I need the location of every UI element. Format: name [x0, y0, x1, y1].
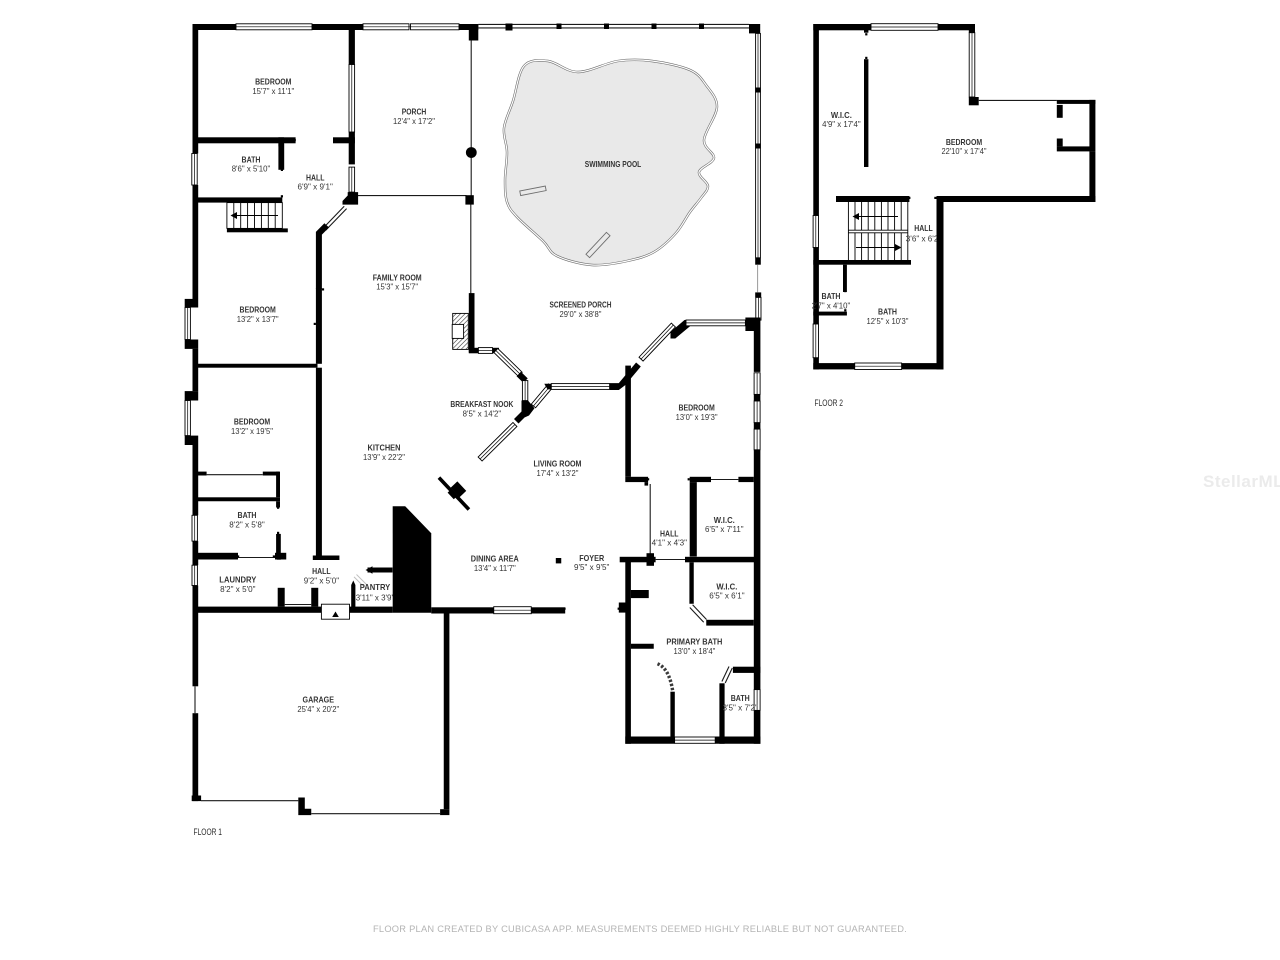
svg-text:3'5" x 7'2": 3'5" x 7'2" [723, 702, 758, 712]
svg-text:8'6" x 5'10": 8'6" x 5'10" [232, 163, 271, 173]
svg-text:13'9" x 22'2": 13'9" x 22'2" [363, 452, 405, 462]
svg-text:6'5" x 7'11": 6'5" x 7'11" [705, 524, 744, 534]
svg-text:15'3" x 15'7": 15'3" x 15'7" [376, 282, 418, 292]
svg-text:GARAGE: GARAGE [303, 694, 335, 704]
svg-text:8'5" x 14'2": 8'5" x 14'2" [463, 409, 502, 419]
svg-text:29'0" x 38'8": 29'0" x 38'8" [560, 309, 602, 319]
svg-text:13'0" x 18'4": 13'0" x 18'4" [673, 646, 715, 656]
svg-text:4'9" x 17'4": 4'9" x 17'4" [822, 119, 861, 129]
svg-text:3'6" x 6'2": 3'6" x 6'2" [906, 234, 941, 244]
svg-text:17'4" x 13'2": 17'4" x 13'2" [537, 468, 579, 478]
svg-text:6'5" x 6'1": 6'5" x 6'1" [709, 591, 744, 601]
svg-text:25'4" x 20'2": 25'4" x 20'2" [297, 704, 339, 714]
svg-text:PORCH: PORCH [402, 107, 427, 117]
svg-text:4'1" x 4'3": 4'1" x 4'3" [652, 537, 687, 547]
svg-text:StellarMLS: StellarMLS [1203, 472, 1280, 491]
svg-text:6'9" x 9'1": 6'9" x 9'1" [298, 181, 333, 191]
svg-text:8'2" x 5'8": 8'2" x 5'8" [229, 519, 264, 529]
svg-text:FLOOR PLAN CREATED BY CUBICASA: FLOOR PLAN CREATED BY CUBICASA APP. MEAS… [373, 924, 907, 934]
svg-text:13'2" x 13'7": 13'2" x 13'7" [237, 314, 279, 324]
svg-text:SWIMMING POOL: SWIMMING POOL [585, 159, 642, 169]
svg-text:8'2" x 5'0": 8'2" x 5'0" [220, 584, 255, 594]
svg-text:22'10" x 17'4": 22'10" x 17'4" [941, 146, 986, 156]
svg-text:FLOOR 2: FLOOR 2 [815, 398, 844, 408]
svg-text:15'7" x 11'1": 15'7" x 11'1" [252, 86, 294, 96]
svg-text:12'4" x 17'2": 12'4" x 17'2" [393, 116, 435, 126]
svg-text:BEDROOM: BEDROOM [255, 77, 291, 87]
svg-text:9'2" x 5'0": 9'2" x 5'0" [304, 575, 339, 585]
svg-text:SCREENED PORCH: SCREENED PORCH [550, 300, 612, 310]
svg-text:12'5" x 10'3": 12'5" x 10'3" [867, 316, 909, 326]
svg-text:9'5" x 9'5": 9'5" x 9'5" [574, 562, 609, 572]
svg-text:13'4" x 11'7": 13'4" x 11'7" [474, 563, 516, 573]
svg-text:PANTRY: PANTRY [360, 582, 391, 592]
svg-text:13'0" x 19'3": 13'0" x 19'3" [676, 412, 718, 422]
svg-text:3'11" x 3'9": 3'11" x 3'9" [356, 593, 395, 603]
svg-text:13'2" x 19'5": 13'2" x 19'5" [231, 426, 273, 436]
svg-text:2'7" x 4'10": 2'7" x 4'10" [812, 300, 851, 310]
svg-text:FLOOR 1: FLOOR 1 [194, 827, 223, 837]
svg-text:HALL: HALL [914, 223, 933, 233]
